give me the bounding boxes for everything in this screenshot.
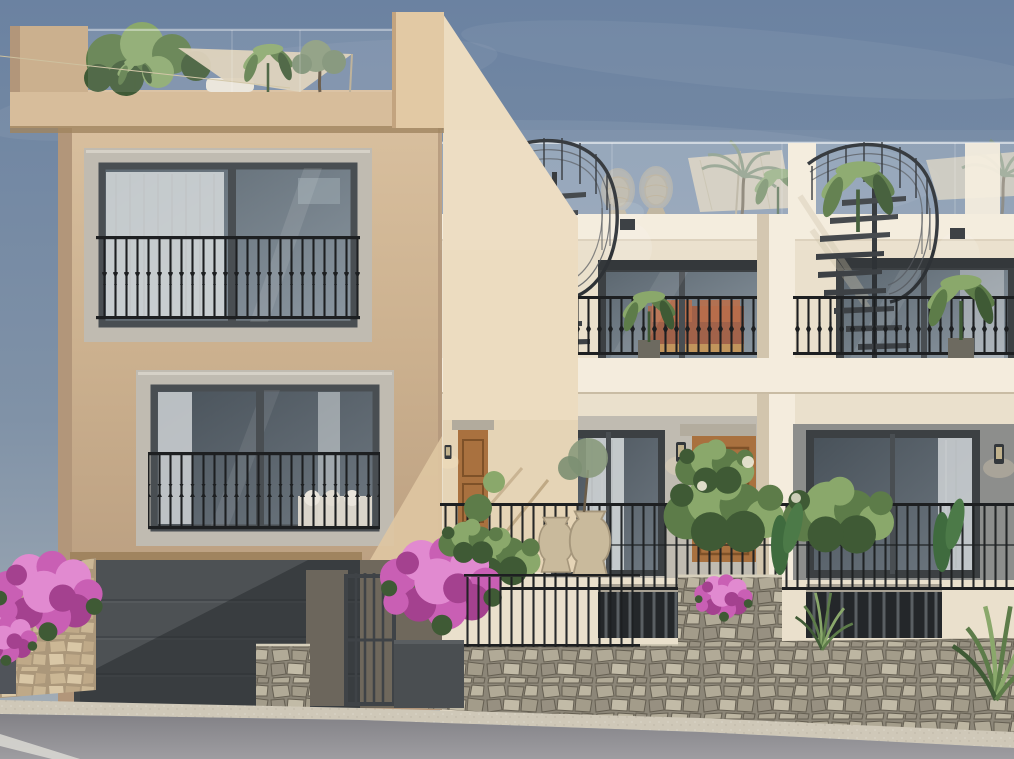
roof-pillar-shade bbox=[10, 26, 20, 92]
architectural-rendering bbox=[0, 0, 1014, 759]
door-lintel bbox=[680, 424, 756, 436]
roof-cornice bbox=[10, 90, 444, 128]
door-lintel bbox=[452, 420, 494, 430]
street-fence bbox=[464, 574, 640, 647]
render-canvas bbox=[0, 0, 1014, 759]
shaded-entry-wall bbox=[306, 570, 348, 706]
juliet-railing bbox=[148, 452, 380, 529]
planter-edge bbox=[394, 640, 464, 644]
juliet-railing bbox=[96, 236, 360, 319]
upper-window bbox=[84, 148, 372, 342]
dark-planter bbox=[394, 640, 464, 708]
climbing-vine bbox=[483, 471, 505, 493]
stone-gate-pillar bbox=[256, 644, 310, 708]
stone-urn bbox=[539, 518, 573, 572]
cornice-shadow bbox=[10, 126, 444, 133]
lower-window bbox=[136, 370, 394, 546]
stair-bulkhead-edge bbox=[392, 12, 396, 128]
roof-glass-balustrade bbox=[88, 28, 392, 92]
haze-overlay bbox=[440, 130, 1014, 250]
climbing-vine bbox=[464, 494, 492, 522]
roof-pillar-left bbox=[10, 26, 88, 92]
stair-bulkhead bbox=[392, 12, 444, 128]
stone-urn bbox=[570, 511, 610, 576]
